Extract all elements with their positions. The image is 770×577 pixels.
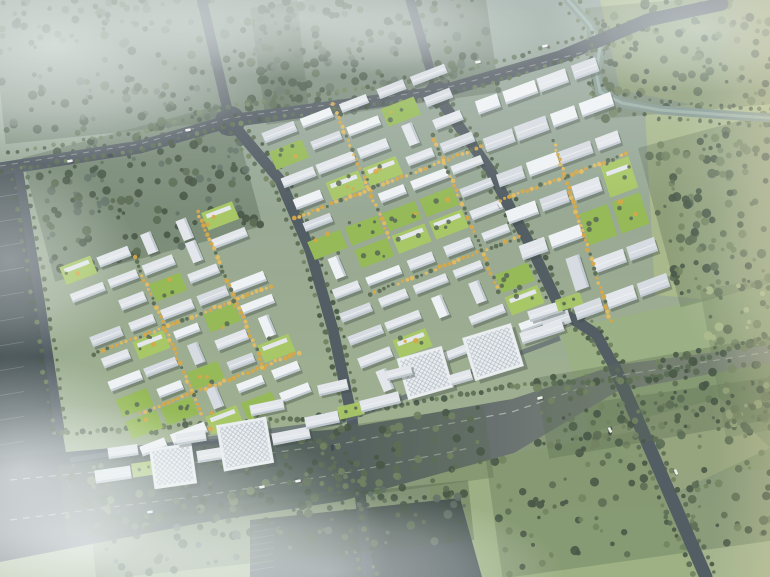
aerial-site-rendering [0,0,770,577]
edge-glow [712,0,770,577]
rendering-viewport [0,0,770,577]
atmosphere [0,0,770,577]
